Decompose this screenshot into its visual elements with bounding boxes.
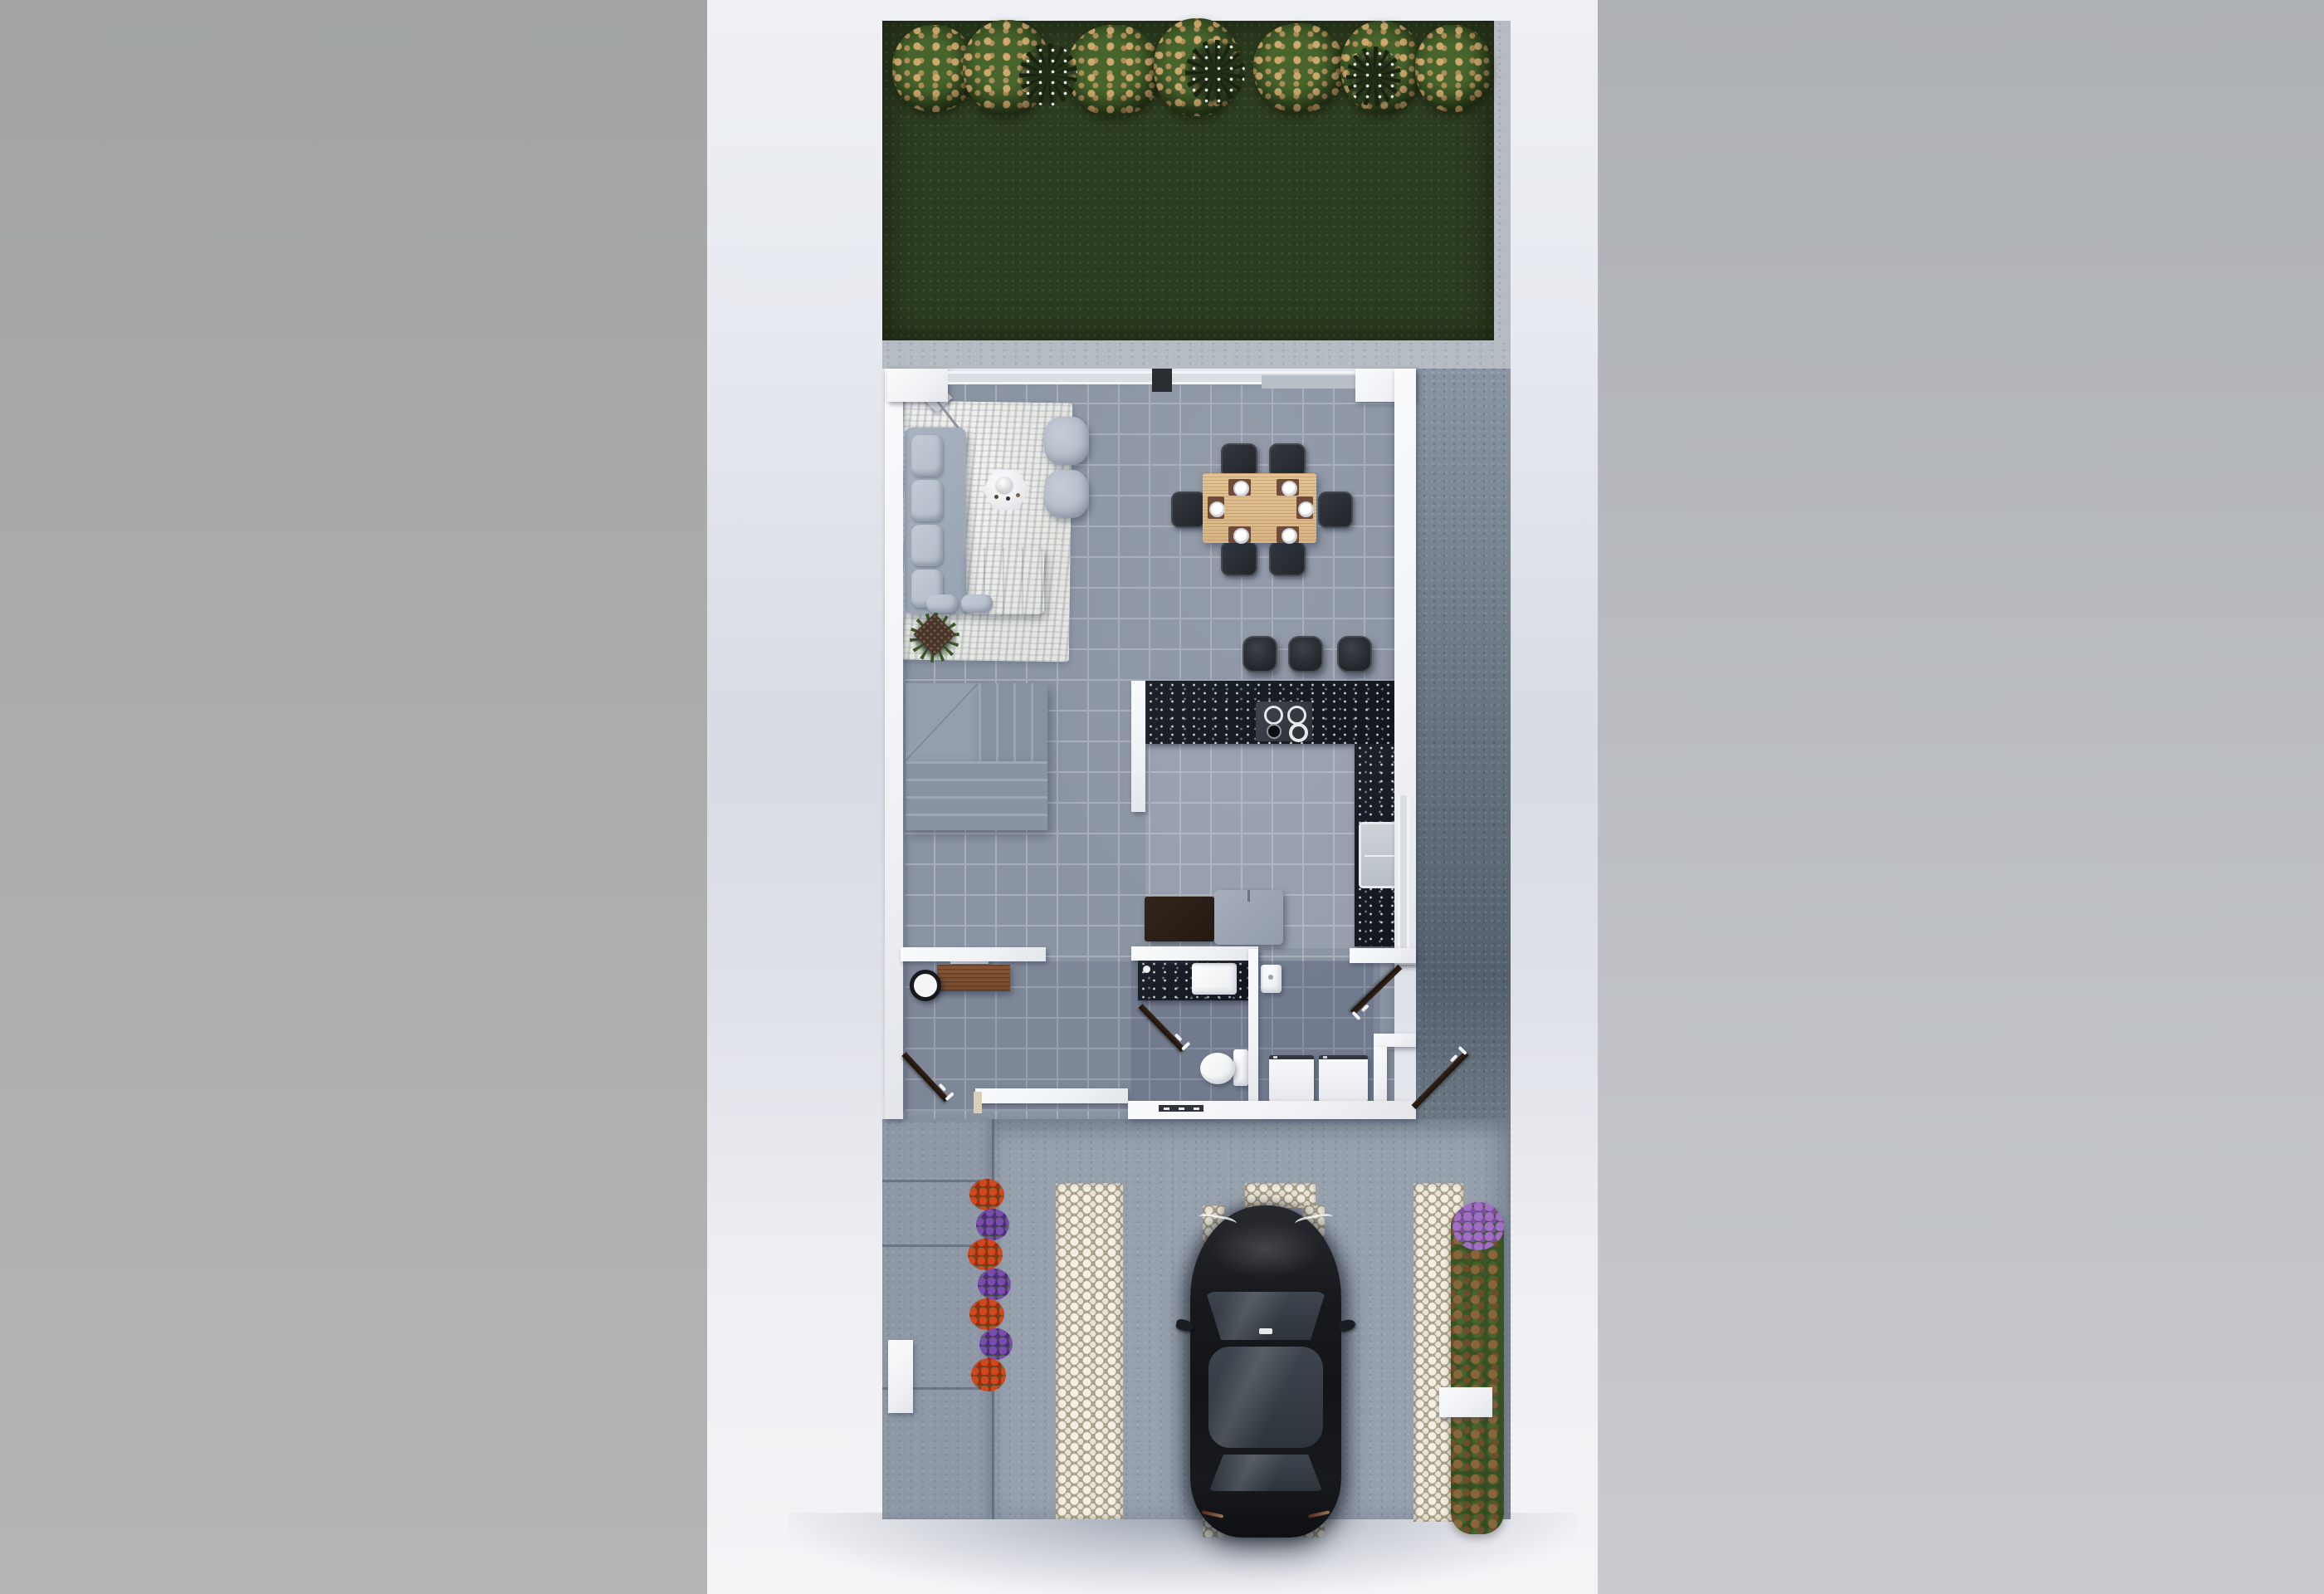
dryer (1319, 1055, 1368, 1102)
porch-wall (975, 1088, 1128, 1103)
sofa-back-cushion (911, 435, 943, 477)
exterior-wall-west (885, 369, 903, 1119)
parked-car (1190, 1205, 1341, 1538)
burner (1287, 706, 1306, 725)
coffee-table-decor (994, 495, 998, 499)
purple-flower-cluster (1452, 1202, 1504, 1250)
shrub-column (1451, 1205, 1504, 1534)
stair-landing (906, 683, 979, 761)
rear-window-sill (1262, 375, 1355, 389)
washing-machine (1269, 1055, 1314, 1102)
backdrop-right (1598, 0, 2324, 1594)
ottoman (1044, 470, 1089, 518)
spiky-plant (1019, 43, 1077, 106)
hall-wall (901, 947, 1046, 961)
plate (1282, 481, 1297, 496)
laundry-nook-wall-side (1374, 1047, 1387, 1104)
utility-pad (1439, 1387, 1492, 1417)
front-window (1159, 1105, 1203, 1112)
spiky-plant (1185, 40, 1245, 105)
plate (1209, 501, 1225, 517)
car-rear-window (1207, 1455, 1325, 1491)
sofa-seat-cushion (926, 594, 958, 613)
faucet (1143, 966, 1150, 973)
side-edge-strip (1494, 21, 1511, 369)
kitchen-wall-south (1350, 948, 1416, 963)
flower-cluster-purple (976, 1209, 1009, 1240)
plate (1233, 528, 1249, 544)
gate-post (888, 1340, 913, 1413)
stair-lower-flight (906, 761, 1047, 830)
coffee-table-decor (1016, 493, 1020, 497)
shower-drain (1268, 975, 1273, 980)
sliding-door-mullion (1152, 369, 1172, 392)
burner (1264, 706, 1283, 725)
car-hood-sheen (1210, 1220, 1321, 1279)
plate (1298, 501, 1314, 517)
hedge-bush (1253, 23, 1345, 113)
flower-cluster-red (969, 1179, 1004, 1210)
hedge-bush (1067, 25, 1162, 116)
sofa-back-cushion (911, 525, 943, 566)
bar-stool (1337, 636, 1372, 672)
sofa-seat-cushion (961, 594, 993, 613)
render-canvas (0, 0, 2324, 1594)
car-sunroof (1208, 1347, 1323, 1448)
flower-cluster-purple (978, 1269, 1011, 1300)
dining-chair (1269, 541, 1306, 576)
coffee-table-tray (996, 477, 1013, 493)
console-desk (937, 965, 1010, 991)
sofa-back-cushion (911, 480, 943, 521)
plate (1282, 528, 1297, 544)
car-rearview-mirror (1259, 1328, 1272, 1334)
back-patio-strip (882, 340, 1511, 369)
backdrop-left (0, 0, 707, 1594)
bar-stool (1243, 636, 1277, 672)
burner (1289, 723, 1308, 742)
stair-upper-flight (979, 683, 1047, 761)
plate (1233, 481, 1249, 496)
toilet-tank (1233, 1049, 1248, 1086)
kitchen-partition-wall (1131, 681, 1145, 812)
laundry-nook-wall-top (1374, 1034, 1416, 1047)
hedge-bush (1415, 25, 1492, 112)
spiky-plant (1346, 46, 1401, 106)
flower-cluster-red (971, 1358, 1006, 1391)
flower-cluster-red (969, 1298, 1004, 1330)
east-window (1398, 795, 1409, 961)
toilet-bowl (1200, 1053, 1235, 1084)
coffee-table-decor (1006, 496, 1010, 501)
pebble-patch-center (1245, 1183, 1316, 1208)
bathroom-wall-east (1248, 949, 1258, 1111)
bathroom-wall-north (1131, 946, 1258, 961)
dining-chair (1171, 491, 1206, 528)
wall-corner-northwest (887, 369, 948, 402)
refrigerator-door-seam (1247, 890, 1250, 902)
bathroom-sink (1192, 963, 1237, 995)
round-mirror (910, 970, 941, 1001)
side-yard-concrete (1416, 369, 1511, 1119)
dining-chair (1221, 541, 1257, 576)
cooktop (1256, 702, 1312, 741)
dining-chair (1318, 491, 1353, 528)
pebble-strip-left (1056, 1183, 1123, 1519)
burner-knob (1267, 724, 1282, 739)
ottoman (1044, 417, 1089, 465)
flower-cluster-purple (979, 1328, 1013, 1360)
bar-stool (1288, 636, 1323, 672)
porch-step (974, 1092, 982, 1113)
kitchen-cabinet (1145, 897, 1214, 941)
sink-divider (1365, 855, 1394, 857)
flower-cluster-red (968, 1239, 1003, 1270)
